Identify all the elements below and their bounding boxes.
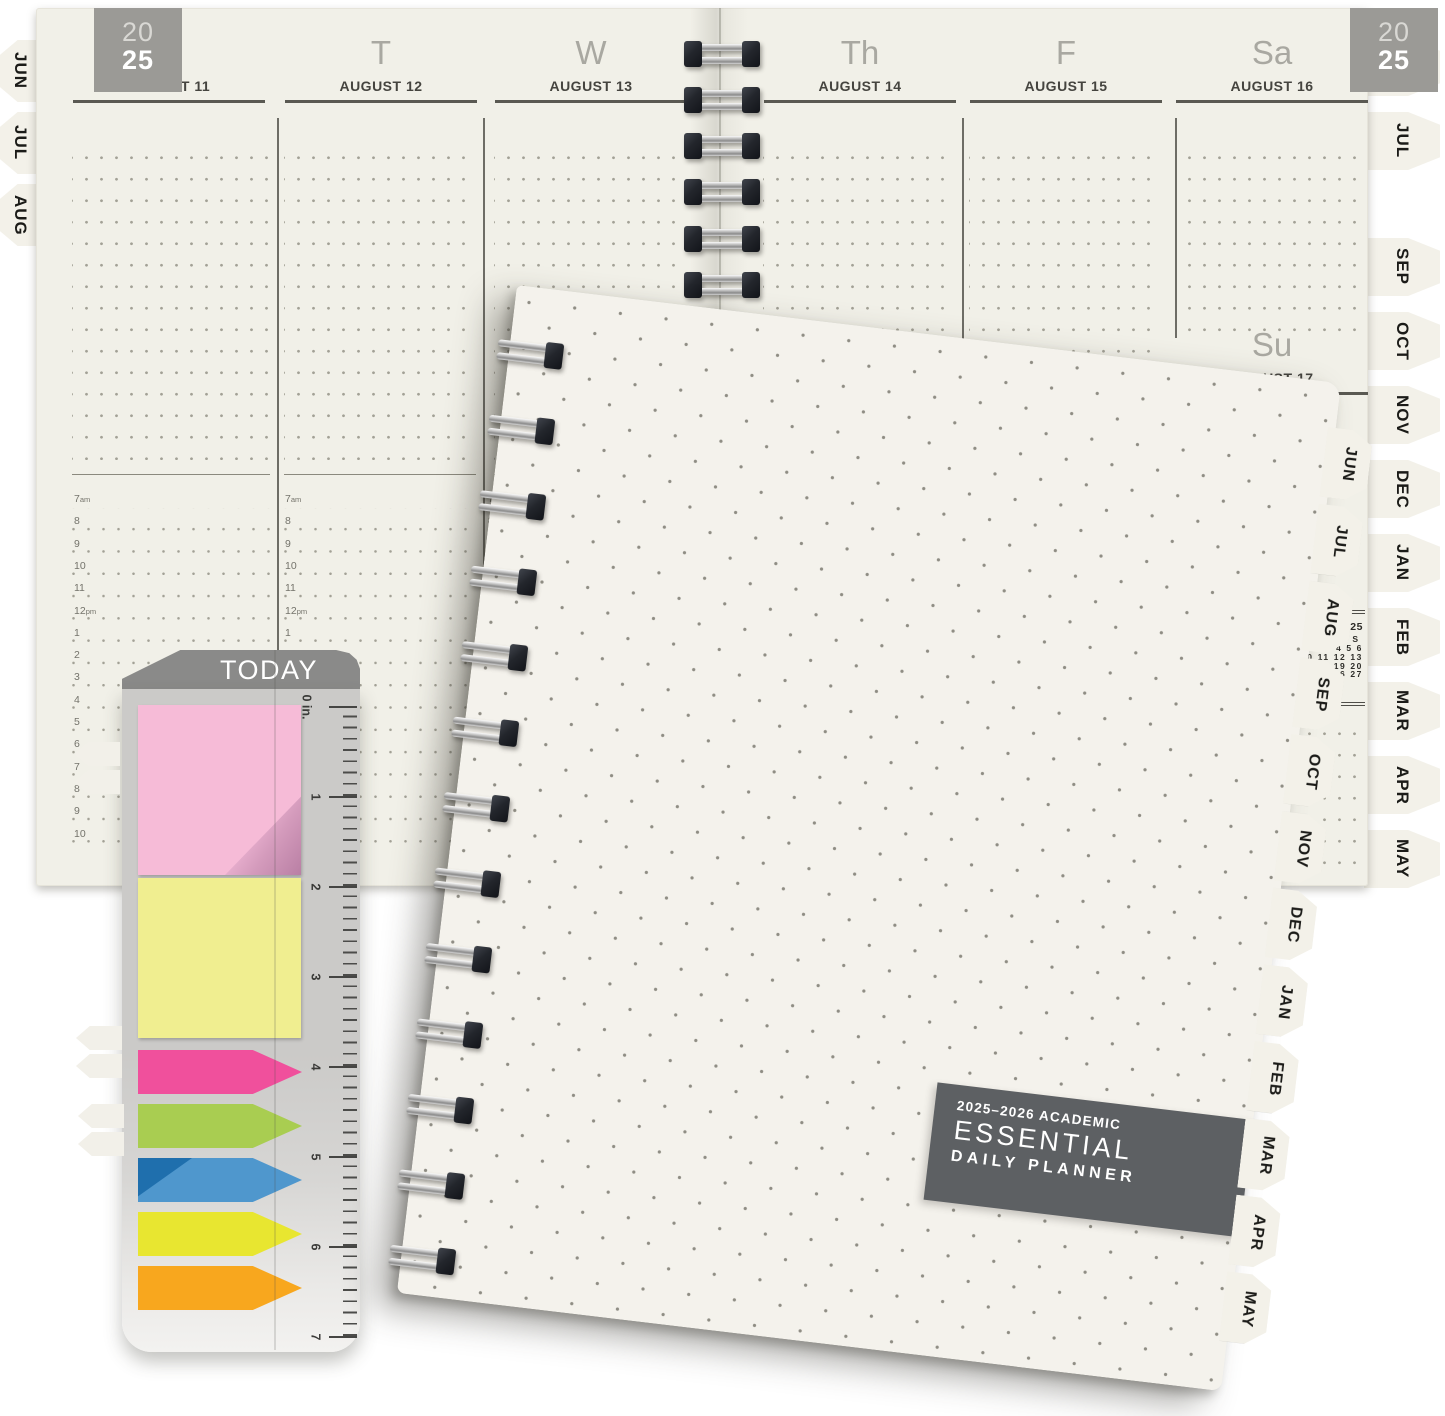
- day-column-thursday: Th AUGUST 14: [757, 36, 963, 103]
- tab-label: DEC: [1281, 889, 1307, 961]
- time-slot-label: 7: [74, 762, 80, 773]
- time-slot-label: 11: [285, 583, 296, 594]
- ruler-inch-mark: 3: [329, 976, 357, 978]
- ruler-inch-label: 6: [309, 1244, 323, 1251]
- time-slot-label: 3: [74, 672, 80, 683]
- header-rule: [73, 100, 265, 103]
- tab-label: APR: [1392, 756, 1412, 814]
- spiral-coil: [684, 86, 760, 114]
- spiral-coil: [388, 1241, 459, 1277]
- tab-sep-right: SEP: [1364, 238, 1440, 296]
- tab-may-right: MAY: [1364, 830, 1440, 888]
- time-slot-label: 12pm: [285, 606, 307, 617]
- spiral-coil: [424, 939, 495, 975]
- spiral-coil: [684, 225, 760, 253]
- tab-jan-right: JAN: [1364, 534, 1440, 592]
- planner-product-image: JUN JUL AUG JUNJULSEPOCTNOVDECJANFEBMARA…: [0, 0, 1445, 1416]
- ruler-inch-label: 5: [309, 1154, 323, 1161]
- year-badge-right: 20 25: [1350, 8, 1438, 92]
- ruler-inch-label: 7: [309, 1334, 323, 1341]
- cover-title-label: 2025–2026 ACADEMIC ESSENTIAL DAILY PLANN…: [924, 1082, 1254, 1237]
- dot-grid-monday: [72, 138, 268, 460]
- day-abbr: T: [278, 36, 484, 70]
- tab-label: NOV: [1392, 386, 1412, 444]
- time-slot-label: 8: [74, 516, 80, 527]
- ruler-inch-mark: 2: [329, 886, 357, 888]
- cover-tab-may: MAY: [1219, 1271, 1273, 1346]
- tab-label: FEB: [1392, 608, 1412, 666]
- tab-label: JUN: [10, 40, 30, 102]
- day-date: AUGUST 13: [488, 78, 694, 94]
- spiral-coil: [415, 1014, 486, 1050]
- time-slot-label: 1: [285, 628, 291, 639]
- tab-label: MAY: [1235, 1273, 1261, 1345]
- year-top: 20: [94, 18, 182, 46]
- cover-tab-jan: JAN: [1256, 964, 1310, 1039]
- tab-nov-right: NOV: [1364, 386, 1440, 444]
- tab-label: MAR: [1253, 1120, 1279, 1192]
- time-slot-label: 4: [74, 695, 80, 706]
- day-abbr: W: [488, 36, 694, 70]
- yellow-sticky-note: [138, 878, 301, 1038]
- day-abbr: F: [963, 36, 1169, 70]
- header-rule: [495, 100, 687, 103]
- time-slot-label: 1: [74, 628, 80, 639]
- year-bottom: 25: [94, 46, 182, 74]
- tab-label: OCT: [1392, 312, 1412, 370]
- day-column-tuesday: T AUGUST 12: [278, 36, 484, 103]
- time-slot-label: 6: [74, 739, 80, 750]
- spiral-coil: [397, 1165, 468, 1201]
- header-rule: [285, 100, 477, 103]
- time-slot-label: 7am: [74, 494, 90, 505]
- tab-dec-right: DEC: [1364, 460, 1440, 518]
- tab-feb-right: FEB: [1364, 608, 1440, 666]
- tab-oct-right: OCT: [1364, 312, 1440, 370]
- time-divider: [72, 474, 270, 475]
- tab-label: SEP: [1392, 238, 1412, 296]
- day-column-wednesday: W AUGUST 13: [488, 36, 694, 103]
- day-abbr: Sa: [1169, 36, 1375, 70]
- header-rule: [1176, 100, 1368, 103]
- header-rule: [764, 100, 956, 103]
- time-slot-label: 7am: [285, 494, 301, 505]
- today-ruler-bookmark: TODAY 0 in.1234567: [122, 650, 360, 1352]
- tab-label: NOV: [1290, 813, 1316, 885]
- today-label: TODAY: [122, 650, 360, 690]
- cover-tab-apr: APR: [1228, 1195, 1282, 1270]
- tab-label: MAR: [1392, 682, 1412, 740]
- time-slot-label: 10: [285, 561, 297, 572]
- ruler-inch-label: 2: [309, 884, 323, 891]
- day-date: AUGUST 16: [1169, 78, 1375, 94]
- white-flag: [76, 1054, 122, 1078]
- ruler-inch-mark: 0 in.: [329, 706, 357, 708]
- day-column-saturday: Sa AUGUST 16: [1169, 36, 1375, 103]
- cover-tab-dec: DEC: [1265, 888, 1319, 963]
- tab-label: DEC: [1392, 460, 1412, 518]
- curled-corner: [225, 795, 301, 875]
- day-abbr: Th: [757, 36, 963, 70]
- spiral-coil: [684, 40, 760, 68]
- tab-label: SEP: [1308, 659, 1334, 731]
- day-abbr: Su: [1169, 328, 1375, 362]
- time-slot-label: 5: [74, 717, 80, 728]
- time-slot-label: 2: [74, 650, 80, 661]
- tab-label: JAN: [1271, 966, 1297, 1038]
- time-slot-label: 12pm: [74, 606, 96, 617]
- pink-sticky-note: [138, 705, 301, 875]
- dot-grid-tuesday: [284, 138, 474, 460]
- time-slot-label: 10: [74, 561, 86, 572]
- ruler-inch-mark: 6: [329, 1246, 357, 1248]
- dot-grid-saturday: [1175, 138, 1363, 334]
- spiral-coil: [684, 178, 760, 206]
- time-slot-label: 9: [74, 806, 80, 817]
- ruler-inch-label: 4: [309, 1064, 323, 1071]
- spiral-coil: [684, 132, 760, 160]
- tab-label: JUL: [1326, 506, 1352, 578]
- white-flag: [78, 1132, 124, 1156]
- year-badge-left: 20 25: [94, 8, 182, 92]
- cover-tab-mar: MAR: [1237, 1118, 1291, 1193]
- tab-label: APR: [1244, 1196, 1270, 1268]
- folded-corner: [138, 1158, 192, 1198]
- tab-label: MAY: [1392, 830, 1412, 888]
- year-top: 20: [1350, 18, 1438, 46]
- tab-label: AUG: [10, 184, 30, 246]
- tab-label: JUL: [10, 112, 30, 174]
- year-bottom: 25: [1350, 46, 1438, 74]
- ruler-inch-label: 3: [309, 974, 323, 981]
- white-flag: [78, 1104, 124, 1128]
- tab-label: FEB: [1262, 1043, 1288, 1115]
- planner-cover-notebook: 2025–2026 ACADEMIC ESSENTIAL DAILY PLANN…: [397, 285, 1341, 1391]
- tab-label: OCT: [1299, 736, 1325, 808]
- column-separator: [1175, 118, 1177, 338]
- header-rule: [970, 100, 1162, 103]
- ruler-inch-mark: 7: [329, 1336, 357, 1338]
- tab-mar-right: MAR: [1364, 682, 1440, 740]
- white-flag: [76, 1026, 122, 1050]
- ruler-inch-label: 0 in.: [299, 694, 313, 719]
- day-date: AUGUST 14: [757, 78, 963, 94]
- day-date: AUGUST 15: [963, 78, 1169, 94]
- tab-apr-right: APR: [1364, 756, 1440, 814]
- cover-tab-feb: FEB: [1246, 1041, 1300, 1116]
- time-slot-label: 8: [285, 516, 291, 527]
- day-date: AUGUST 12: [278, 78, 484, 94]
- tab-label: JUN: [1335, 429, 1361, 501]
- time-slot-label: 9: [285, 539, 291, 550]
- spiral-coil: [406, 1090, 477, 1126]
- tab-jul-right: JUL: [1364, 112, 1440, 170]
- ruler-inch-mark: 4: [329, 1066, 357, 1068]
- time-slot-label: 9: [74, 539, 80, 550]
- tab-label: JAN: [1392, 534, 1412, 592]
- time-slot-label: 11: [74, 583, 85, 594]
- spiral-coil: [433, 863, 504, 899]
- ruler-minor-ticks: [343, 706, 357, 1338]
- day-column-friday: F AUGUST 15: [963, 36, 1169, 103]
- tab-label: AUG: [1317, 582, 1343, 654]
- ruler-inch-mark: 1: [329, 796, 357, 798]
- ruler-inch-mark: 5: [329, 1156, 357, 1158]
- time-divider: [284, 474, 476, 475]
- fold-line: [274, 650, 276, 1350]
- time-slot-label: 10: [74, 829, 86, 840]
- today-banner: TODAY: [122, 650, 360, 689]
- spiral-coil: [684, 271, 760, 299]
- ruler-inch-label: 1: [309, 794, 323, 801]
- tab-label: JUL: [1392, 112, 1412, 170]
